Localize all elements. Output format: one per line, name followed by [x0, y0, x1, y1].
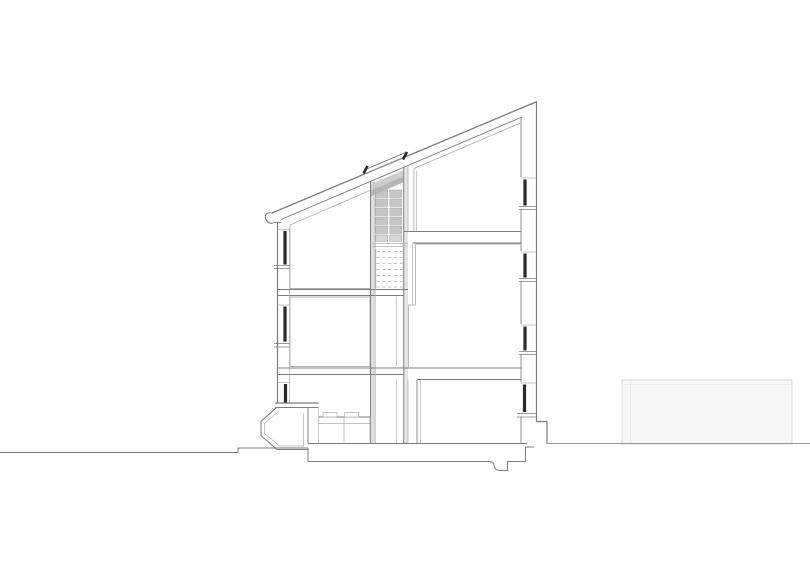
attic-right-room-outline — [414, 123, 522, 232]
shelf-cell — [376, 235, 388, 241]
window-sill-right-2 — [519, 279, 537, 282]
stair-run-panel — [377, 252, 403, 288]
skylight-frame-line — [367, 157, 405, 173]
attic-left-room-outline — [290, 190, 371, 289]
drawing-page — [0, 0, 810, 570]
building-section-drawing — [0, 0, 810, 570]
window-sill-right-1 — [519, 207, 537, 210]
gutter-hook — [265, 213, 273, 223]
entry-porch-outer — [261, 408, 308, 450]
right-wall-outer — [537, 102, 548, 444]
shelf-cell — [376, 199, 388, 206]
shelf-cell — [376, 226, 388, 233]
shelf-bottom-lines — [372, 244, 408, 247]
shelf-cell — [376, 217, 388, 224]
shelf-cell — [390, 217, 402, 224]
shelf-cell — [390, 208, 402, 215]
foundation-bottom-profile — [308, 447, 534, 471]
stair-shaft-left-wall-fill — [371, 182, 376, 444]
mid-right-room-outline — [409, 244, 522, 368]
entry-porch-inner — [265, 411, 304, 446]
kitchen-box-1 — [323, 413, 337, 418]
shelf-cell — [390, 235, 402, 241]
ground-line-left — [0, 448, 308, 453]
shelf-cell — [390, 190, 402, 197]
shelf-cell — [390, 226, 402, 233]
window-sill-left-1 — [274, 266, 290, 269]
neighbor-building-block — [622, 380, 792, 444]
stair-shaft-right-wall-fill — [404, 168, 408, 444]
skylight-glass-line — [366, 153, 406, 170]
window-heads-right — [521, 178, 536, 383]
shelf-cell — [376, 208, 388, 215]
window-sill-right-3 — [519, 352, 537, 355]
shelf-cell — [390, 199, 402, 206]
kitchen-counter-lines — [319, 417, 371, 444]
window-sill-left-2 — [274, 344, 290, 348]
kitchen-box-2 — [345, 413, 359, 418]
shelf-grid — [376, 190, 402, 241]
mid-left-room-outline — [290, 297, 370, 367]
window-sill-right-4 — [517, 414, 536, 418]
